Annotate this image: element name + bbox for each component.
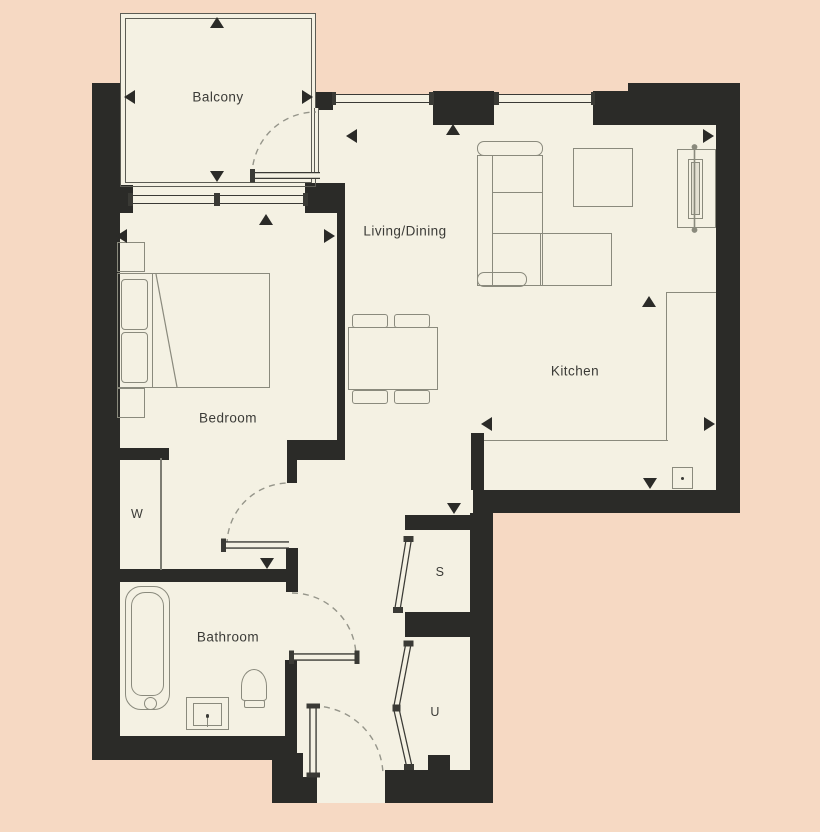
dimension-arrow-up-icon <box>210 17 224 28</box>
window-cap <box>494 92 499 105</box>
wall-store-utility-divider <box>405 612 470 637</box>
sink-drain-dot <box>681 477 684 480</box>
sofa-body <box>477 155 543 286</box>
kitchen-label: Kitchen <box>551 364 599 379</box>
sofa-cushion-line <box>492 233 543 234</box>
wall-hall-top <box>287 440 345 460</box>
bedside-table-top <box>117 242 145 272</box>
kitchen-counter-edge-horizontal <box>484 440 668 441</box>
bed-pillow <box>121 279 148 330</box>
wall-counter-stub <box>471 433 484 490</box>
window-cap <box>332 92 337 105</box>
bathroom-label: Bathroom <box>197 630 259 645</box>
sofa-chaise <box>540 233 612 286</box>
dining-chair <box>352 314 388 328</box>
bedroom-label: Bedroom <box>199 411 257 426</box>
wall-bathroom-bottom <box>92 736 285 760</box>
washbasin-tap-stem <box>207 718 208 727</box>
toilet-icon <box>241 669 267 701</box>
floorplan: Balcony Living/Dining Kitchen Bedroom Ba… <box>0 0 820 832</box>
dining-table <box>348 327 438 390</box>
window-cap <box>303 193 308 206</box>
bed-pillow <box>121 332 148 383</box>
living-window-left-icon <box>333 94 433 103</box>
wall-entry-left-b <box>303 777 317 803</box>
dimension-arrow-left-icon <box>481 417 492 431</box>
wall-top-pier-mid <box>433 91 494 125</box>
wall-store-top <box>405 515 472 530</box>
wardrobe-front-line <box>160 458 162 570</box>
bedside-table-bottom <box>117 388 145 418</box>
dimension-arrow-right-icon <box>703 129 714 143</box>
balcony-railing-right-segment <box>314 108 319 176</box>
wardrobe-label: W <box>131 507 143 521</box>
wall-cupboards-right <box>470 513 493 803</box>
dimension-arrow-down-icon <box>643 478 657 489</box>
kitchen-counter-edge-vertical <box>666 292 667 441</box>
dimension-arrow-down-icon <box>260 558 274 569</box>
bed-headboard-line <box>152 273 153 388</box>
wall-utility-notch <box>428 755 450 778</box>
wall-bedroom-living-divider <box>337 183 345 457</box>
dimension-arrow-up-icon <box>259 214 273 225</box>
utility-label: U <box>430 705 439 719</box>
dimension-arrow-right-icon <box>324 229 335 243</box>
kitchen-counter-edge-top <box>667 292 716 293</box>
dining-chair <box>394 314 430 328</box>
living-window-right-icon <box>497 94 593 103</box>
wall-right <box>716 83 740 513</box>
side-table <box>573 148 633 207</box>
wall-door-pier-mid <box>286 548 298 592</box>
tv-screen <box>691 162 700 215</box>
wall-bathroom-right-lower <box>285 660 297 760</box>
window-cap <box>429 92 434 105</box>
sofa-armrest-top <box>477 141 543 156</box>
wall-kitchen-bottom <box>473 490 740 513</box>
sofa-back-line <box>492 156 493 286</box>
toilet-base <box>244 700 265 708</box>
dimension-arrow-up-icon <box>446 124 460 135</box>
dimension-arrow-down-icon <box>210 171 224 182</box>
dining-chair <box>352 390 388 404</box>
dining-chair <box>394 390 430 404</box>
sofa-cushion-line <box>492 192 543 193</box>
dimension-arrow-left-icon <box>116 229 127 243</box>
window-cap <box>128 193 133 206</box>
bathtub-inner <box>131 592 164 696</box>
wall-bathroom-top <box>92 569 290 582</box>
sofa-armrest-bottom <box>477 272 527 287</box>
window-cap <box>214 193 220 206</box>
dimension-arrow-right-icon <box>302 90 313 104</box>
wall-entry-left-a <box>272 753 303 803</box>
wall-hall-pier <box>287 460 297 483</box>
window-cap <box>591 92 596 105</box>
wall-balcony-pier-left <box>92 185 133 213</box>
store-label: S <box>436 565 445 579</box>
dimension-arrow-left-icon <box>124 90 135 104</box>
balcony-label: Balcony <box>192 90 243 105</box>
washbasin-tap-dot <box>206 714 210 718</box>
living-dining-label: Living/Dining <box>363 224 446 239</box>
dimension-arrow-left-icon <box>346 129 357 143</box>
dimension-arrow-up-icon <box>642 296 656 307</box>
bathtub-faucet <box>144 697 157 710</box>
dimension-arrow-down-icon <box>447 503 461 514</box>
dimension-arrow-right-icon <box>704 417 715 431</box>
